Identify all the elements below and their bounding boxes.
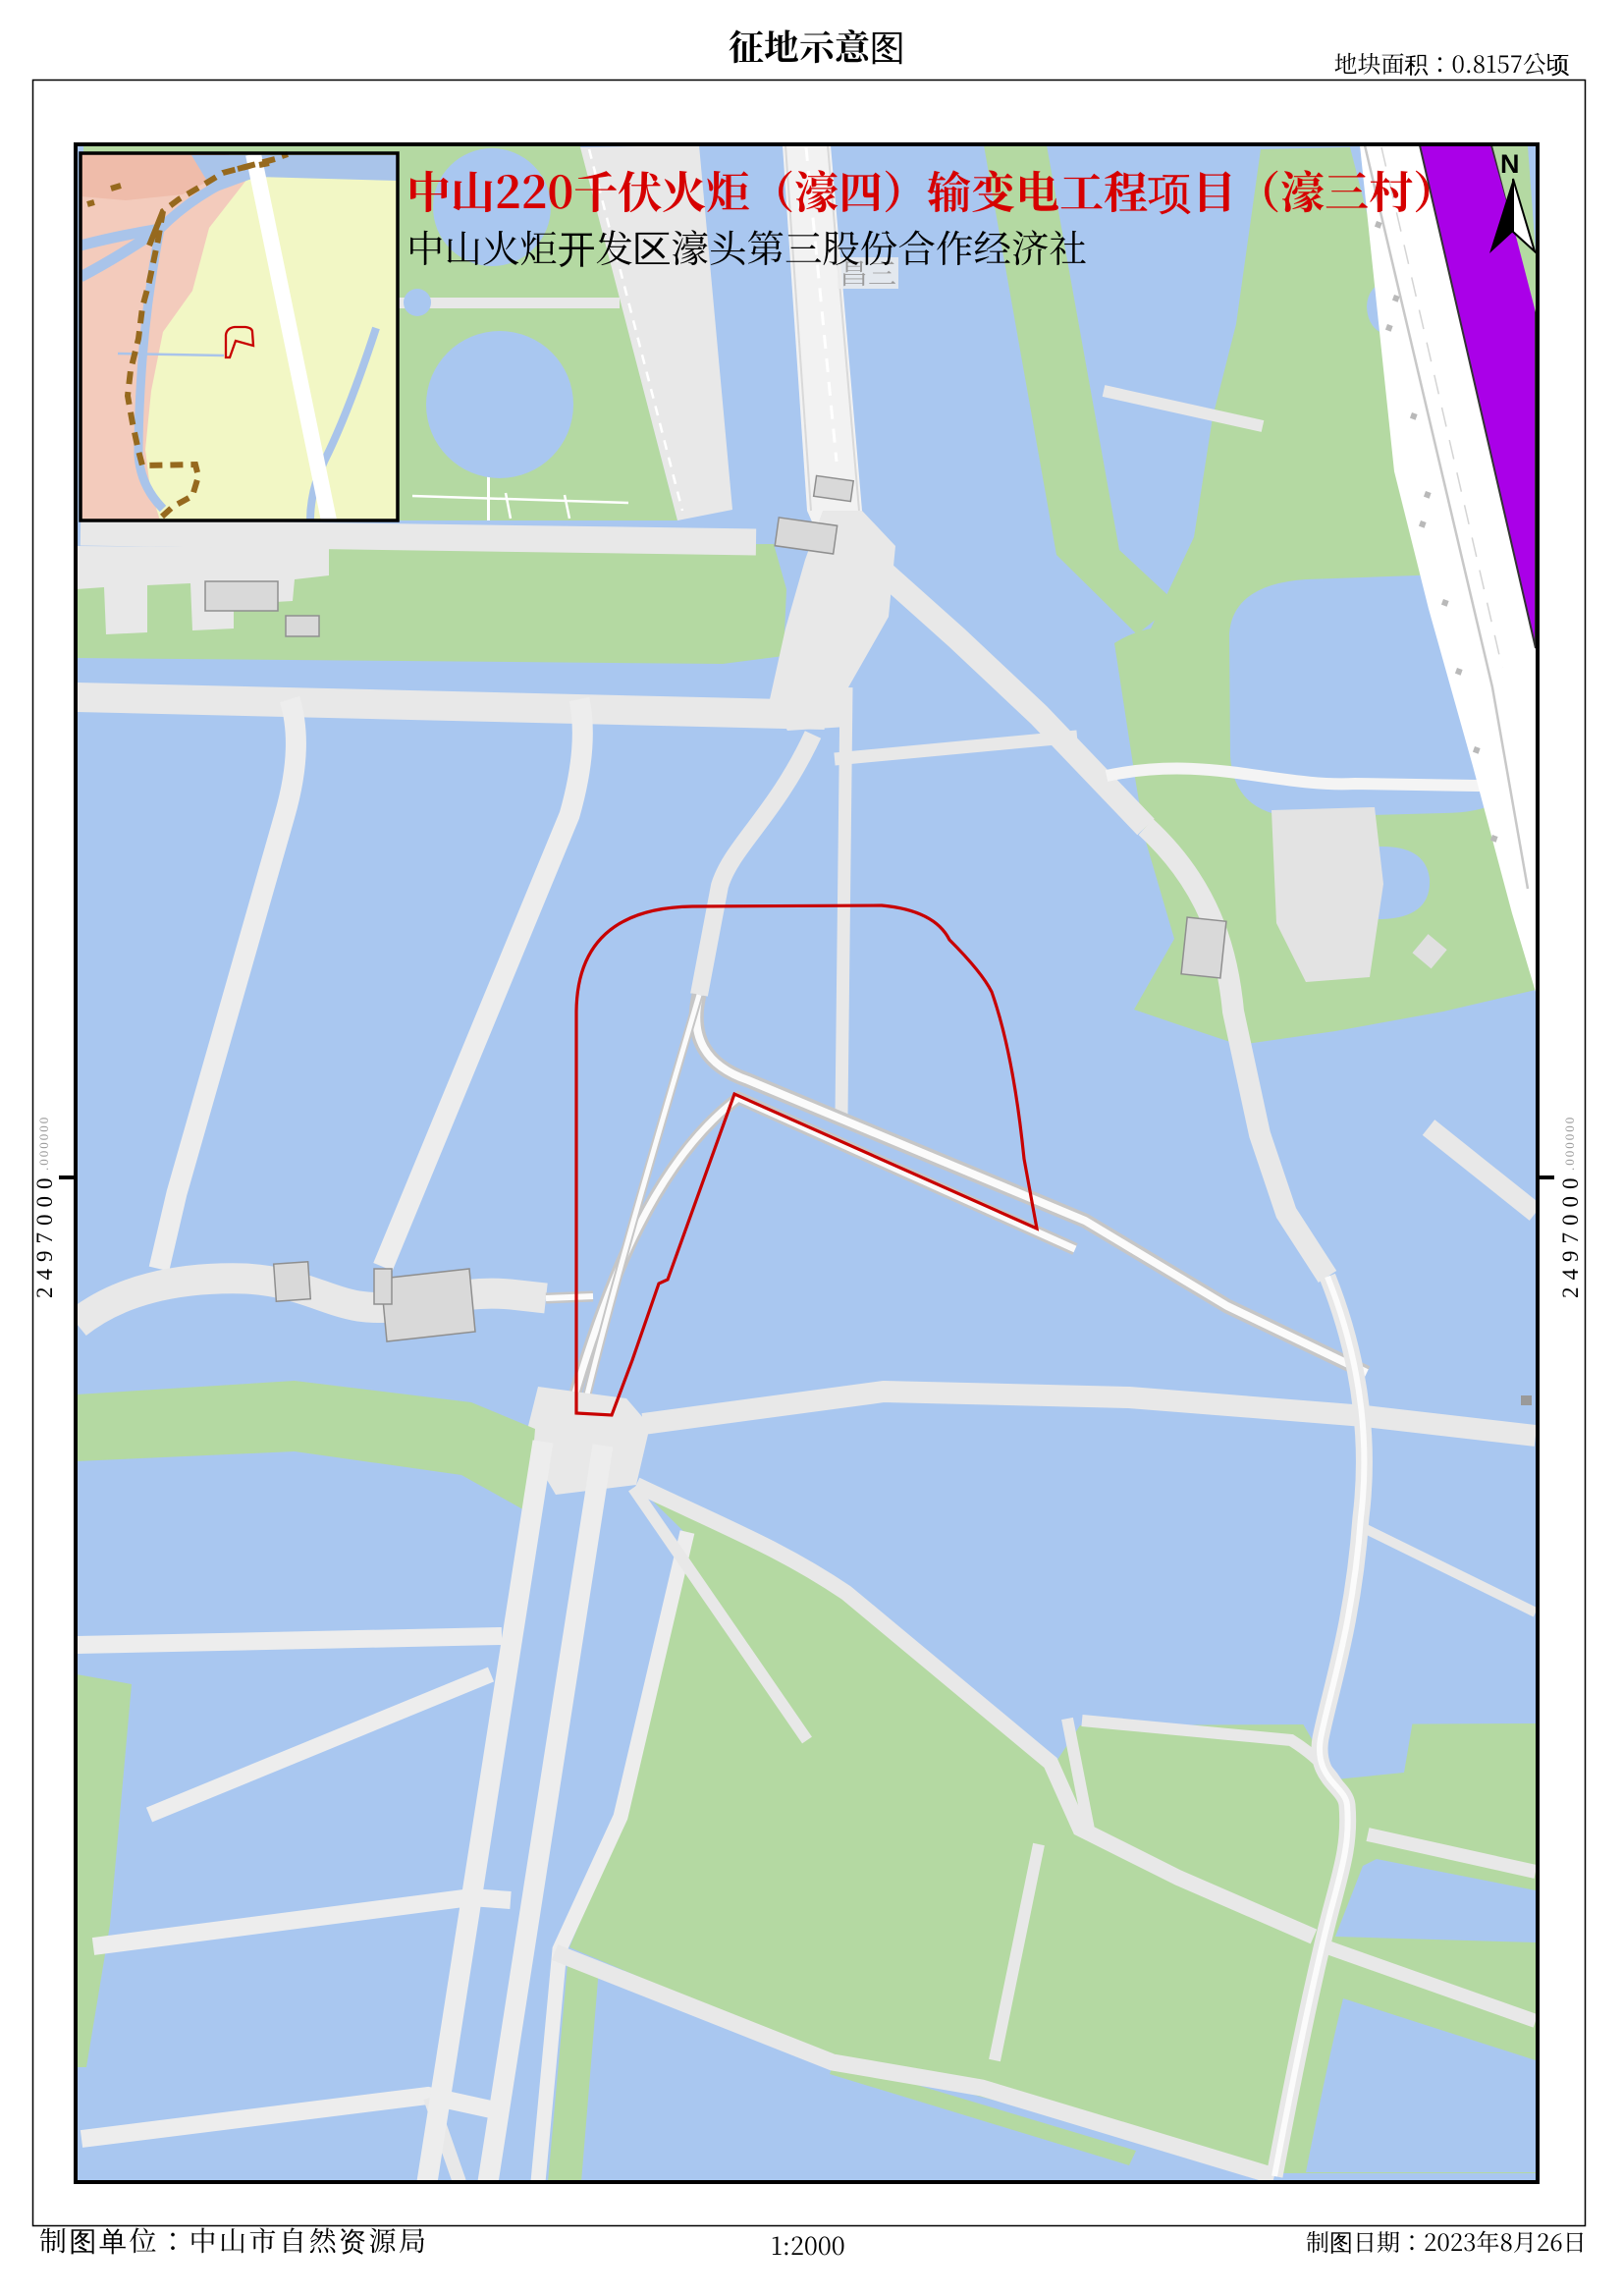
svg-text:N: N <box>1500 149 1520 179</box>
svg-text:2497000: 2497000 <box>32 1172 57 1299</box>
svg-text:.000000: .000000 <box>1562 1116 1577 1171</box>
svg-text:2497000: 2497000 <box>1558 1172 1583 1299</box>
svg-text:.000000: .000000 <box>36 1116 51 1171</box>
